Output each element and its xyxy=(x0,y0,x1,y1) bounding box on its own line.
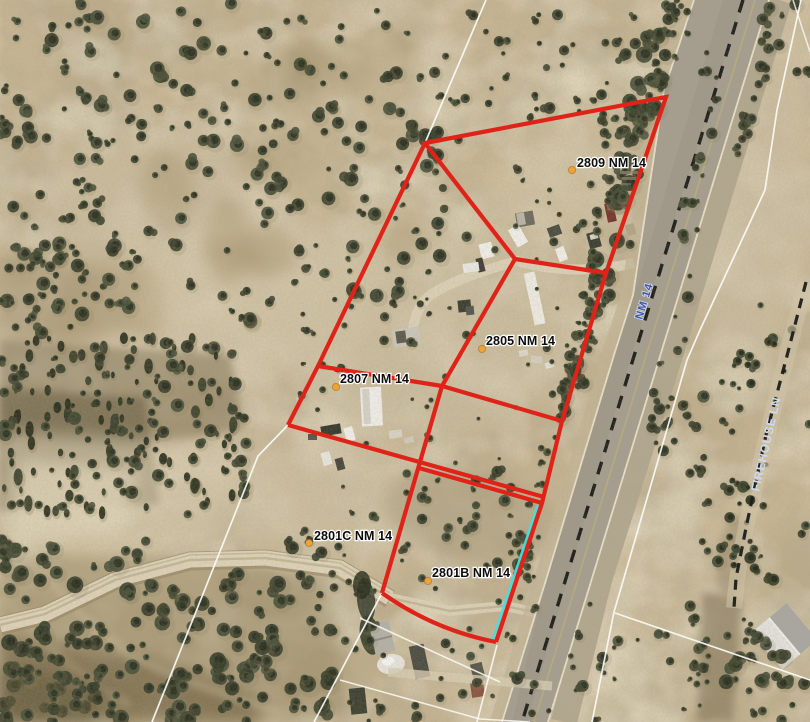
svg-text:2809 NM 14: 2809 NM 14 xyxy=(577,156,646,170)
svg-text:2805 NM 14: 2805 NM 14 xyxy=(486,334,555,348)
svg-text:2801B NM 14: 2801B NM 14 xyxy=(432,566,510,580)
svg-text:2807 NM 14: 2807 NM 14 xyxy=(340,372,409,386)
svg-text:2801C NM 14: 2801C NM 14 xyxy=(314,529,392,543)
